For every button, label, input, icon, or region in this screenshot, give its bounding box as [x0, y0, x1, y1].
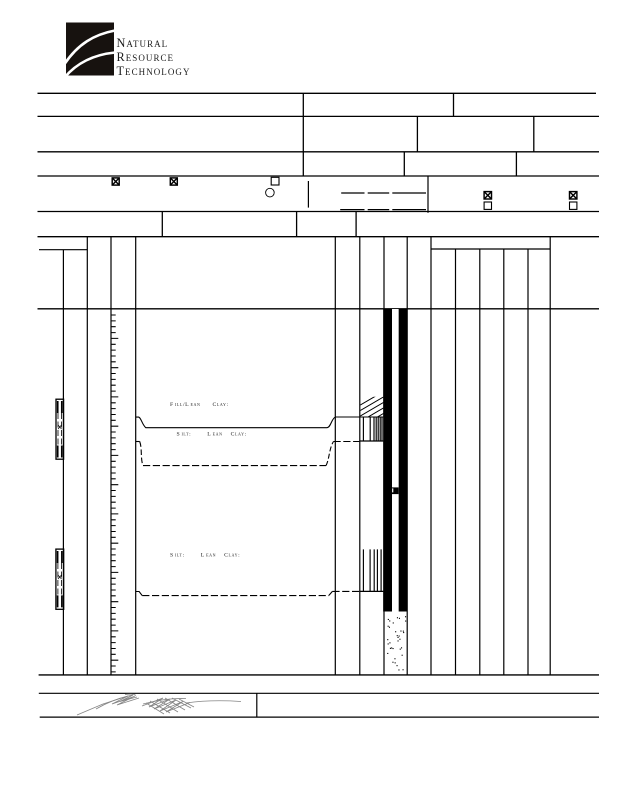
- svg-text:Silt:LeanClay:: Silt:LeanClay:: [177, 432, 247, 438]
- svg-text:Fill/LeanClay:: Fill/LeanClay:: [170, 402, 229, 408]
- svg-text:Technology: Technology: [117, 64, 191, 78]
- svg-text:Resource: Resource: [117, 50, 175, 64]
- svg-text:Silt:LeanClay:: Silt:LeanClay:: [170, 553, 240, 559]
- svg-text:Natural: Natural: [117, 36, 169, 50]
